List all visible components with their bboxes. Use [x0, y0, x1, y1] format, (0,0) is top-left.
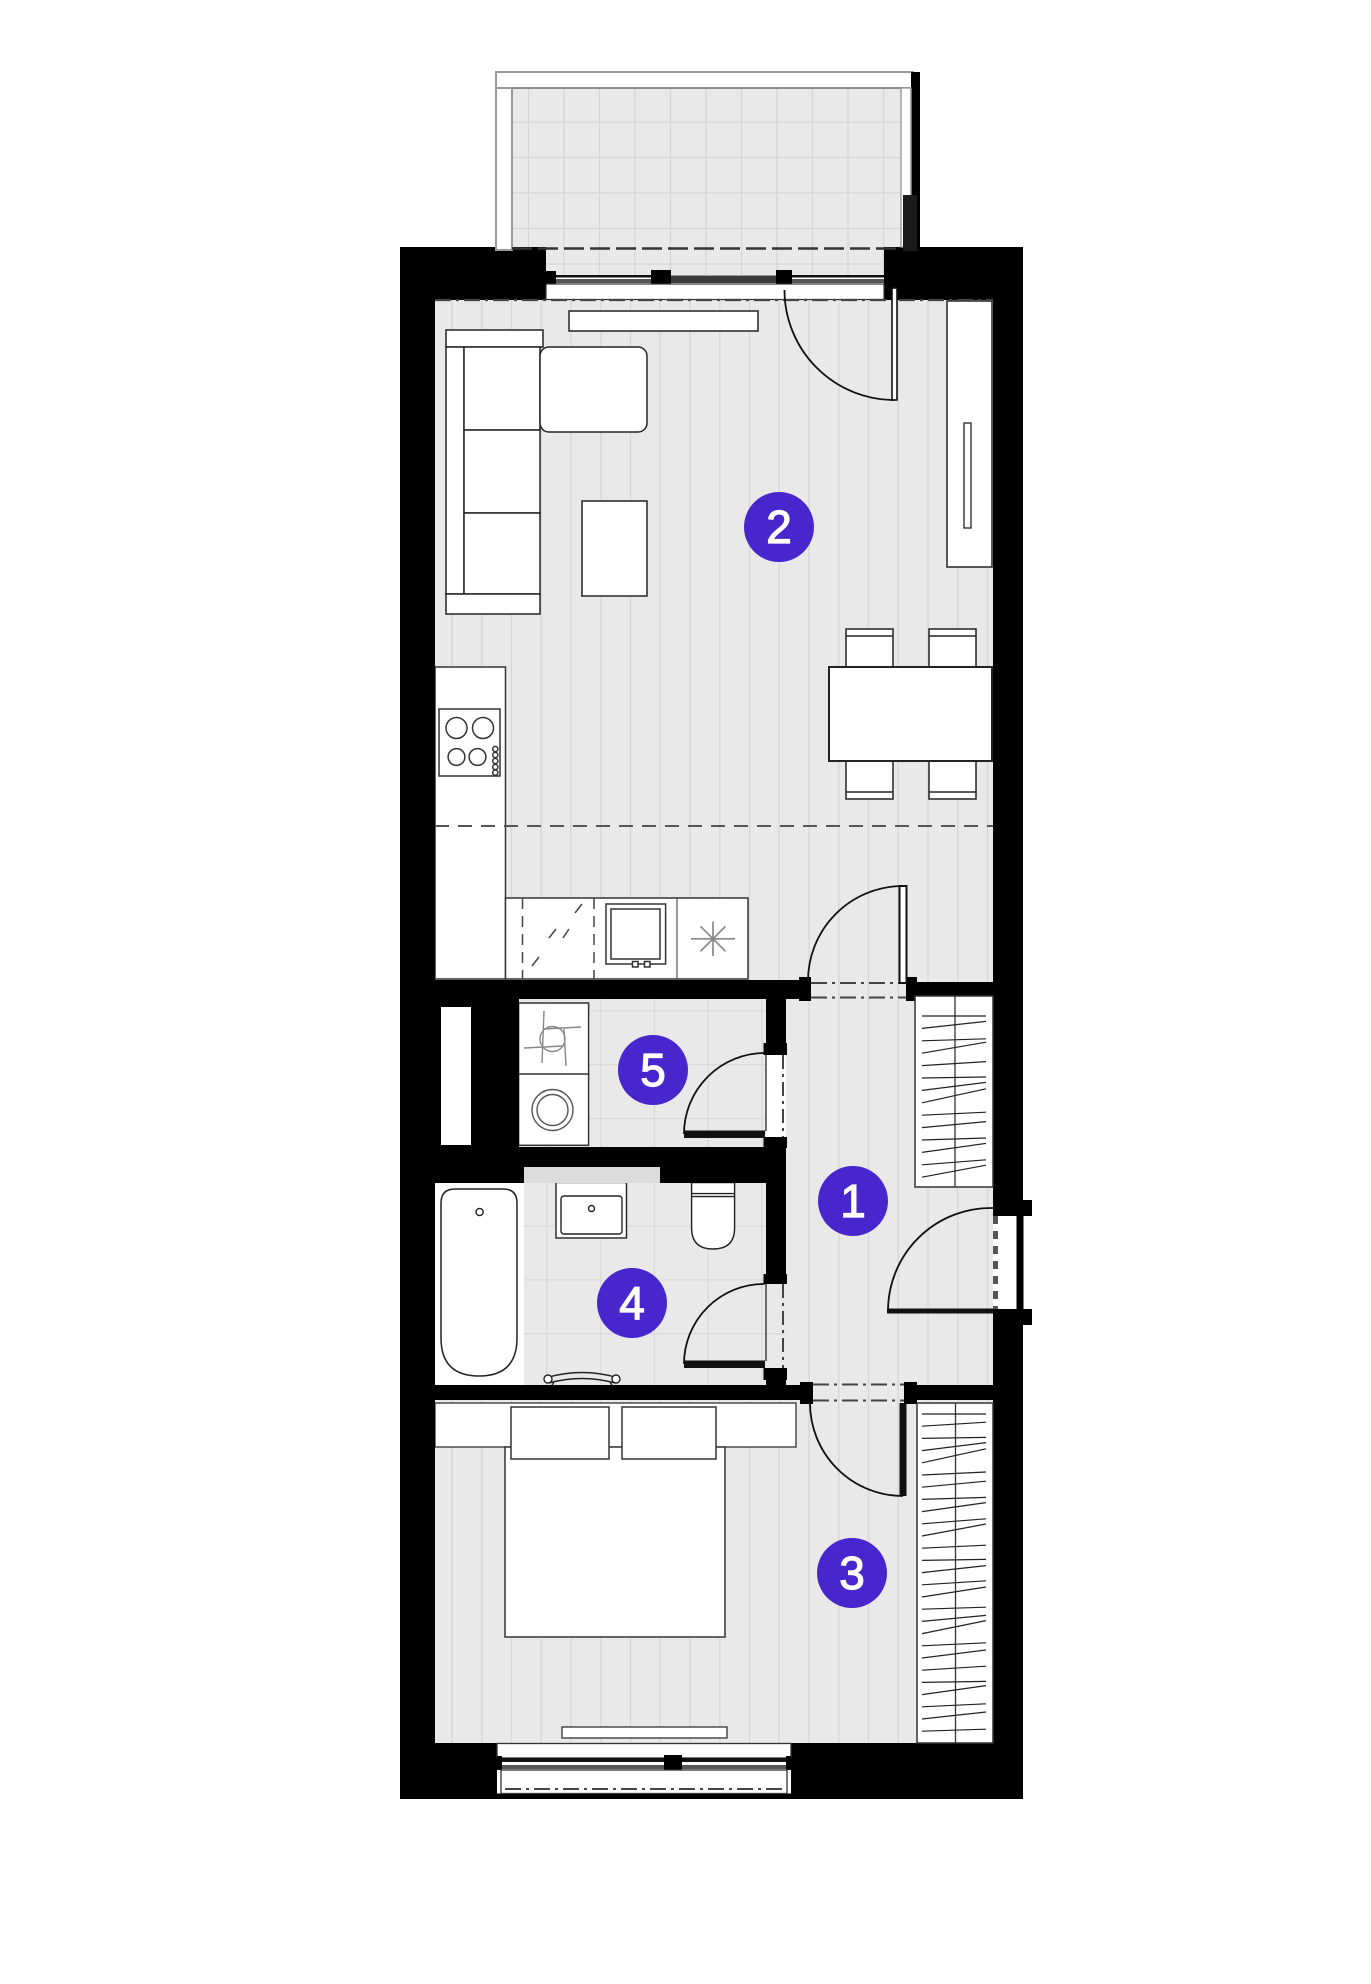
svg-text:3: 3: [839, 1547, 865, 1599]
svg-text:4: 4: [619, 1277, 645, 1329]
svg-text:1: 1: [840, 1175, 866, 1227]
svg-text:5: 5: [640, 1044, 666, 1096]
svg-text:2: 2: [766, 501, 792, 553]
